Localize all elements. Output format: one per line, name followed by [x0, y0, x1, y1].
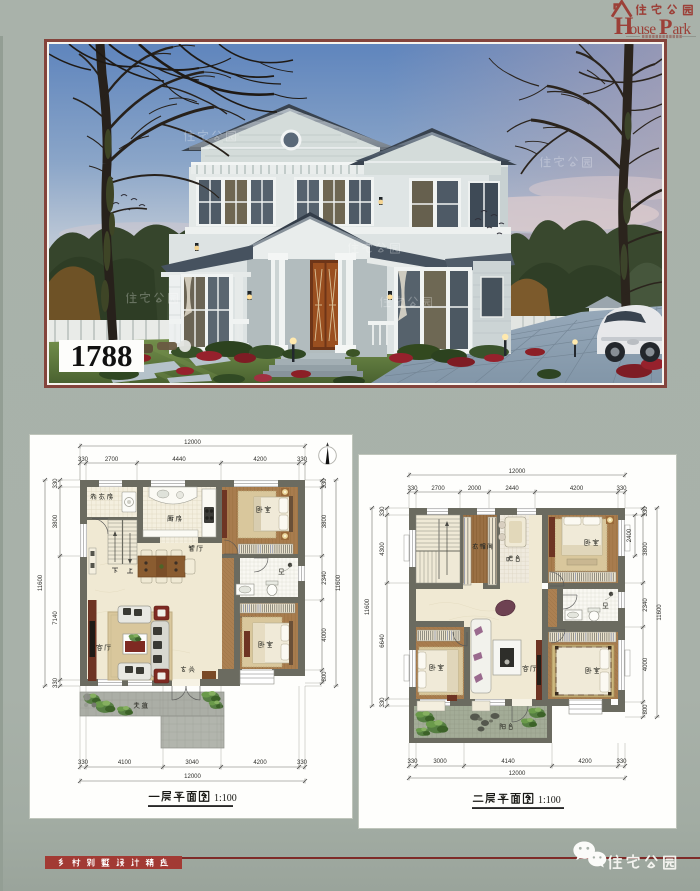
svg-text:4440: 4440 — [172, 457, 186, 463]
svg-text:3040: 3040 — [185, 760, 199, 766]
svg-text:11600: 11600 — [336, 574, 342, 591]
svg-text:2340: 2340 — [643, 598, 649, 612]
svg-text:330: 330 — [78, 457, 89, 463]
svg-text:4200: 4200 — [578, 759, 592, 765]
svg-text:3800: 3800 — [322, 514, 328, 528]
svg-text:800: 800 — [643, 704, 649, 715]
svg-text:1:100: 1:100 — [538, 795, 561, 806]
svg-text:12000: 12000 — [509, 469, 526, 475]
svg-text:330: 330 — [616, 486, 627, 492]
svg-text:3800: 3800 — [53, 514, 59, 528]
svg-text:3800: 3800 — [643, 542, 649, 556]
svg-text:2440: 2440 — [505, 486, 519, 492]
svg-text:11600: 11600 — [657, 604, 663, 621]
svg-text:1:100: 1:100 — [214, 793, 237, 804]
svg-text:330: 330 — [407, 759, 418, 765]
svg-text:4000: 4000 — [322, 628, 328, 642]
svg-text:12000: 12000 — [184, 774, 201, 780]
svg-text:330: 330 — [616, 759, 627, 765]
svg-text:4200: 4200 — [253, 760, 267, 766]
svg-text:2700: 2700 — [105, 457, 119, 463]
svg-text:800: 800 — [322, 671, 328, 682]
svg-text:2700: 2700 — [431, 486, 445, 492]
svg-text:330: 330 — [53, 677, 59, 688]
svg-text:2340: 2340 — [322, 571, 328, 585]
svg-text:330: 330 — [53, 478, 59, 489]
svg-text:330: 330 — [78, 760, 89, 766]
svg-text:330: 330 — [380, 697, 386, 708]
svg-text:7140: 7140 — [53, 611, 59, 625]
svg-text:11600: 11600 — [38, 574, 44, 591]
svg-text:3000: 3000 — [433, 759, 447, 765]
svg-text:12000: 12000 — [509, 771, 526, 777]
svg-text:4100: 4100 — [118, 760, 132, 766]
svg-text:2000: 2000 — [468, 486, 482, 492]
svg-text:330: 330 — [643, 506, 649, 517]
svg-text:330: 330 — [322, 478, 328, 489]
svg-text:6640: 6640 — [380, 634, 386, 648]
svg-text:330: 330 — [407, 486, 418, 492]
svg-text:330: 330 — [297, 760, 308, 766]
svg-text:4140: 4140 — [501, 759, 515, 765]
svg-text:4200: 4200 — [253, 457, 267, 463]
svg-text:2400: 2400 — [627, 528, 633, 542]
svg-text:4200: 4200 — [570, 486, 584, 492]
svg-text:330: 330 — [380, 506, 386, 517]
svg-text:330: 330 — [297, 457, 308, 463]
svg-text:12000: 12000 — [184, 440, 201, 446]
svg-text:11600: 11600 — [365, 598, 371, 615]
svg-text:4300: 4300 — [380, 542, 386, 556]
svg-text:4000: 4000 — [643, 657, 649, 671]
